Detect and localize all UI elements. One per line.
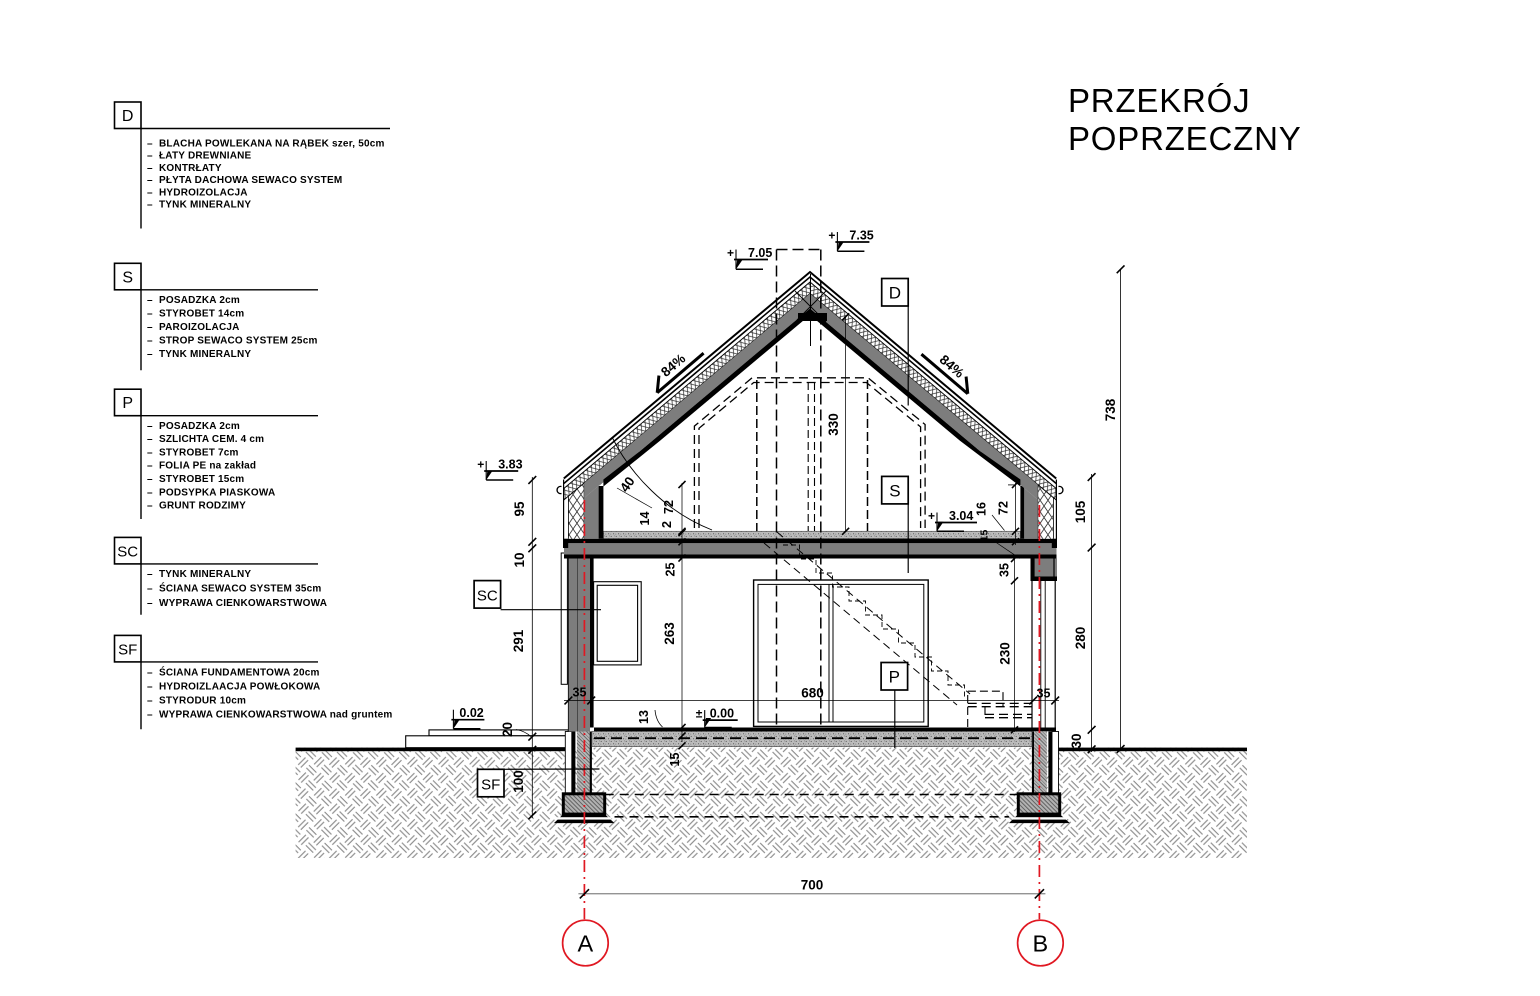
svg-text:7.35: 7.35 <box>849 229 873 243</box>
svg-text:STYRODUR 10cm: STYRODUR 10cm <box>159 696 246 707</box>
svg-text:+: + <box>928 509 935 523</box>
svg-text:SZLICHTA CEM. 4 cm: SZLICHTA CEM. 4 cm <box>159 434 264 445</box>
svg-text:D: D <box>889 284 901 303</box>
svg-text:13: 13 <box>637 710 651 724</box>
svg-text:100: 100 <box>511 770 526 793</box>
svg-text:–: – <box>147 336 153 347</box>
svg-text:700: 700 <box>801 878 824 893</box>
svg-text:2: 2 <box>660 521 674 528</box>
svg-text:GRUNT RODZIMY: GRUNT RODZIMY <box>159 501 246 512</box>
svg-text:HYDROIZOLACJA: HYDROIZOLACJA <box>159 187 248 198</box>
svg-text:–: – <box>147 322 153 333</box>
svg-text:BLACHA POWLEKANA NA RĄBEK szer: BLACHA POWLEKANA NA RĄBEK szer, 50cm <box>159 139 385 150</box>
svg-text:95: 95 <box>512 501 527 517</box>
svg-text:280: 280 <box>1073 627 1088 650</box>
svg-text:0.02: 0.02 <box>459 706 483 720</box>
svg-text:30: 30 <box>1069 733 1084 748</box>
svg-text:–: – <box>147 696 153 707</box>
svg-text:STYROBET 15cm: STYROBET 15cm <box>159 474 244 485</box>
svg-text:–: – <box>147 668 153 679</box>
svg-text:STYROBET 14cm: STYROBET 14cm <box>159 309 244 320</box>
svg-text:35: 35 <box>573 686 587 700</box>
svg-text:–: – <box>147 434 153 445</box>
svg-text:TYNK MINERALNY: TYNK MINERALNY <box>159 569 251 580</box>
svg-text:–: – <box>147 187 153 198</box>
svg-text:POSADZKA 2cm: POSADZKA 2cm <box>159 421 240 432</box>
svg-text:84%: 84% <box>937 352 967 381</box>
svg-text:72: 72 <box>997 501 1011 515</box>
svg-text:PRZEKRÓJ: PRZEKRÓJ <box>1068 82 1250 119</box>
svg-text:680: 680 <box>801 686 824 701</box>
svg-text:PAROIZOLACJA: PAROIZOLACJA <box>159 322 240 333</box>
svg-text:SC: SC <box>117 543 138 560</box>
svg-text:–: – <box>147 474 153 485</box>
svg-text:230: 230 <box>998 642 1013 665</box>
svg-text:7.05: 7.05 <box>748 246 772 260</box>
svg-text:40: 40 <box>617 474 638 495</box>
svg-text:14: 14 <box>638 512 652 526</box>
svg-text:SF: SF <box>481 776 500 793</box>
svg-text:STROP SEWACO SYSTEM 25cm: STROP SEWACO SYSTEM 25cm <box>159 336 318 347</box>
svg-text:±: ± <box>696 707 703 721</box>
svg-text:ŁATY DREWNIANE: ŁATY DREWNIANE <box>159 151 252 162</box>
svg-text:35: 35 <box>1037 687 1051 701</box>
svg-text:25: 25 <box>664 563 678 577</box>
svg-text:263: 263 <box>662 622 677 645</box>
svg-text:B: B <box>1033 930 1049 956</box>
svg-text:+: + <box>727 246 734 260</box>
svg-text:15: 15 <box>668 753 682 767</box>
svg-text:–: – <box>147 309 153 320</box>
svg-text:35: 35 <box>998 563 1012 577</box>
svg-text:D: D <box>122 108 134 125</box>
svg-text:3.83: 3.83 <box>498 458 522 472</box>
svg-text:–: – <box>147 501 153 512</box>
svg-text:–: – <box>147 175 153 186</box>
svg-text:738: 738 <box>1103 398 1118 421</box>
svg-text:ŚCIANA SEWACO SYSTEM 35cm: ŚCIANA SEWACO SYSTEM 35cm <box>159 581 321 594</box>
svg-text:84%: 84% <box>658 351 688 380</box>
svg-text:16: 16 <box>975 502 989 516</box>
svg-text:–: – <box>147 598 153 609</box>
svg-text:WYPRAWA CIENKOWARSTWOWA nad gr: WYPRAWA CIENKOWARSTWOWA nad gruntem <box>159 710 392 721</box>
svg-text:0.00: 0.00 <box>710 707 734 721</box>
svg-text:–: – <box>147 349 153 360</box>
svg-text:+: + <box>477 458 484 472</box>
svg-text:POSADZKA 2cm: POSADZKA 2cm <box>159 295 240 306</box>
svg-text:WYPRAWA CIENKOWARSTWOWA: WYPRAWA CIENKOWARSTWOWA <box>159 598 327 609</box>
svg-text:ŚCIANA FUNDAMENTOWA 20cm: ŚCIANA FUNDAMENTOWA 20cm <box>159 666 320 679</box>
svg-text:TYNK MINERALNY: TYNK MINERALNY <box>159 349 251 360</box>
svg-text:P: P <box>122 395 133 412</box>
svg-text:–: – <box>147 151 153 162</box>
svg-text:STYROBET 7cm: STYROBET 7cm <box>159 447 239 458</box>
svg-text:15: 15 <box>979 530 991 542</box>
svg-text:–: – <box>147 583 153 594</box>
svg-text:A: A <box>578 930 594 956</box>
svg-text:330: 330 <box>826 413 841 436</box>
svg-text:S: S <box>889 481 900 500</box>
svg-text:–: – <box>147 487 153 498</box>
svg-text:–: – <box>147 139 153 150</box>
svg-text:105: 105 <box>1073 500 1088 523</box>
svg-text:PŁYTA DACHOWA SEWACO SYSTEM: PŁYTA DACHOWA SEWACO SYSTEM <box>159 175 342 186</box>
svg-text:–: – <box>147 200 153 211</box>
svg-text:P: P <box>889 668 900 687</box>
svg-text:POPRZECZNY: POPRZECZNY <box>1068 120 1302 157</box>
svg-text:20: 20 <box>500 722 515 737</box>
svg-text:FOLIA PE na zakład: FOLIA PE na zakład <box>159 461 256 472</box>
svg-text:PODSYPKA PIASKOWA: PODSYPKA PIASKOWA <box>159 487 275 498</box>
svg-text:291: 291 <box>511 629 526 652</box>
svg-text:–: – <box>147 682 153 693</box>
svg-text:–: – <box>147 421 153 432</box>
svg-text:HYDROIZLAACJA POWŁOKOWA: HYDROIZLAACJA POWŁOKOWA <box>159 682 320 693</box>
svg-text:3.04: 3.04 <box>949 509 973 523</box>
svg-text:–: – <box>147 569 153 580</box>
svg-text:10: 10 <box>512 552 527 567</box>
svg-text:–: – <box>147 295 153 306</box>
svg-text:–: – <box>147 447 153 458</box>
svg-text:TYNK MINERALNY: TYNK MINERALNY <box>159 200 251 211</box>
svg-text:–: – <box>147 163 153 174</box>
svg-text:–: – <box>147 461 153 472</box>
svg-text:SF: SF <box>118 641 137 658</box>
svg-text:SC: SC <box>477 588 498 605</box>
svg-text:S: S <box>122 269 133 286</box>
svg-text:KONTRŁATY: KONTRŁATY <box>159 163 222 174</box>
svg-text:+: + <box>828 229 835 243</box>
svg-text:–: – <box>147 710 153 721</box>
